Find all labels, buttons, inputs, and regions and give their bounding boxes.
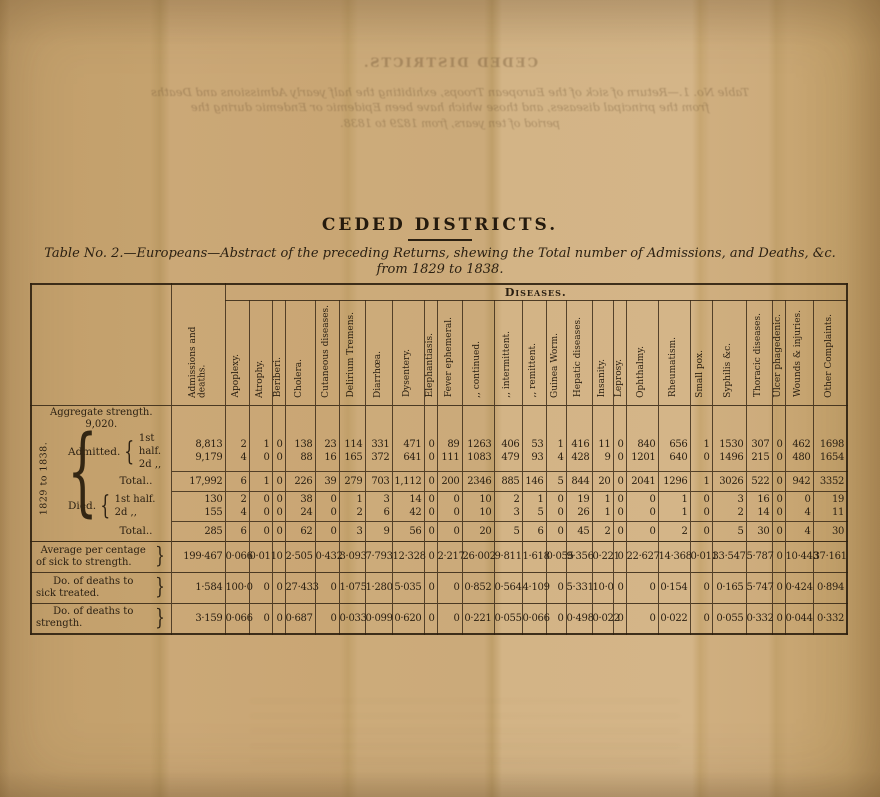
label-line-2: of sick to strength. <box>34 557 153 569</box>
data-cell: 0·221 <box>592 541 613 572</box>
data-cell: 0·066 <box>225 541 249 572</box>
data-cell: 942 <box>785 471 813 491</box>
column-header-label: Hepatic diseases. <box>574 317 584 397</box>
value-line: 307 <box>747 438 770 451</box>
brace-icon: { <box>125 437 135 467</box>
data-cell: 23 <box>494 491 522 521</box>
data-cell: 0·424 <box>785 572 813 603</box>
data-cell: 0·221 <box>462 603 494 634</box>
data-cell: 32 <box>712 491 746 521</box>
value-line: 155 <box>172 506 223 519</box>
data-cell: 100·0 <box>225 572 249 603</box>
data-cell <box>424 405 437 432</box>
data-cell: 11 <box>592 491 613 521</box>
data-cell: 2 <box>592 521 613 541</box>
show-through-line: period of ten years, from 1829 to 1838. <box>140 117 760 130</box>
value-line: 0 <box>250 506 270 519</box>
column-header-label: ,, intermittent. <box>503 331 513 398</box>
data-cell: 199·467 <box>171 541 225 572</box>
row-label: Do. of deaths tosick treated.} <box>31 572 171 603</box>
data-cell: 0 <box>424 521 437 541</box>
caption-line-2: from 1829 to 1838. <box>377 262 504 277</box>
aggregate-strength-label: Aggregate strength.9,020. <box>34 407 169 431</box>
column-header-label: Small pox. <box>696 350 706 398</box>
value-line: 114 <box>340 438 363 451</box>
row-label: Total.. <box>31 521 171 541</box>
data-cell: 0 <box>626 603 658 634</box>
data-cell <box>546 405 566 432</box>
data-cell: 11 <box>658 491 690 521</box>
data-cell <box>566 405 592 432</box>
data-cell: 2041 <box>626 471 658 491</box>
half-label-1: 1st half. <box>115 493 156 506</box>
value-line: 23 <box>316 438 337 451</box>
column-header-label: Cholera. <box>295 359 305 398</box>
data-cell: 6 <box>225 471 249 491</box>
data-cell: 4 <box>785 521 813 541</box>
show-through-title: CEDED DISTRICTS. <box>140 56 760 71</box>
data-cell: 5·747 <box>746 572 772 603</box>
show-through-text: CEDED DISTRICTS. Table No. 1.—Return of … <box>140 56 760 130</box>
brace-icon: } <box>155 575 165 600</box>
data-cell: 00 <box>546 491 566 521</box>
percentage-row: Average per centageof sick to strength.}… <box>31 541 847 572</box>
value-line: 4 <box>547 451 564 464</box>
value-line: 11 <box>814 506 845 519</box>
data-cell: 14 <box>546 432 566 471</box>
brace-icon: } <box>155 606 165 631</box>
data-cell: 0 <box>690 603 712 634</box>
data-cell: 0·099 <box>365 603 392 634</box>
data-cell: 89111 <box>437 432 462 471</box>
label-line-1: Average per centage <box>34 545 153 557</box>
percentage-label-lines: Do. of deaths tosick treated. <box>34 576 153 600</box>
diseases-band-row: Diseases. <box>31 284 847 301</box>
column-header: Diarrhœa. <box>365 301 392 406</box>
data-cell: 0 <box>626 521 658 541</box>
percentage-label-lines: Average per centageof sick to strength. <box>34 545 153 569</box>
row-label: Died.{1st half.2d ,, <box>31 491 171 521</box>
scanned-document-page: CEDED DISTRICTS. Table No. 1.—Return of … <box>0 0 880 797</box>
group-label: Died.{1st half.2d ,, <box>34 491 169 521</box>
show-through-line: Table No. 1.—Return of sick of the Europ… <box>140 85 760 100</box>
column-header-label: Ulcer phagedenic. <box>774 314 784 398</box>
column-header: Wounds & injuries. <box>785 301 813 406</box>
data-cell: 0 <box>772 541 785 572</box>
data-cell: 1·618 <box>522 541 546 572</box>
data-cell: 8,8139,179 <box>171 432 225 471</box>
data-cell: 226 <box>285 471 315 491</box>
data-cell: 0·894 <box>813 572 847 603</box>
value-line: 0 <box>773 438 783 451</box>
data-cell: 56 <box>392 521 424 541</box>
data-cell: 27·433 <box>285 572 315 603</box>
data-cell: 2 <box>658 521 690 541</box>
value-line: 0 <box>425 493 435 506</box>
page-title: CEDED DISTRICTS. <box>0 215 880 235</box>
value-line: 1 <box>340 493 363 506</box>
data-cell: 1·280 <box>365 572 392 603</box>
data-cell: 2346 <box>462 471 494 491</box>
value-line: 3 <box>366 493 390 506</box>
data-cell: 0·620 <box>392 603 424 634</box>
value-line: 0 <box>438 493 460 506</box>
data-cell: 200 <box>437 471 462 491</box>
row-label: Average per centageof sick to strength.} <box>31 541 171 572</box>
data-cell: 8401201 <box>626 432 658 471</box>
column-header: Fever ephemeral. <box>437 301 462 406</box>
total-row: Total..285600620395600205604520020530043… <box>31 521 847 541</box>
value-line: 88 <box>286 451 313 464</box>
data-cell: 1442 <box>392 491 424 521</box>
data-cell: 406479 <box>494 432 522 471</box>
half-label-2: 2d ,, <box>115 506 156 519</box>
column-header-label: Cutaneous diseases. <box>322 305 332 398</box>
row-label-header <box>31 301 171 406</box>
value-line: 479 <box>495 451 520 464</box>
row-label: Do. of deaths tostrength.} <box>31 603 171 634</box>
percentage-label: Do. of deaths tostrength.} <box>34 606 169 631</box>
percentage-row: Do. of deaths tosick treated.}1·584100·0… <box>31 572 847 603</box>
data-cell: 10·0 <box>592 572 613 603</box>
data-cell: 00 <box>272 491 285 521</box>
corner-cell <box>31 284 171 301</box>
show-through-line: from the principal diseases, and those w… <box>140 100 760 115</box>
value-line: 1654 <box>814 451 845 464</box>
data-cell: 3·159 <box>171 603 225 634</box>
data-cell: 1926 <box>566 491 592 521</box>
column-header-label: Guinea Worm. <box>551 333 561 398</box>
data-cell <box>272 405 285 432</box>
column-header-label: Admissions and deaths. <box>189 301 208 398</box>
data-cell: 656640 <box>658 432 690 471</box>
column-header: Other Complaints. <box>813 301 847 406</box>
data-cell: 3352 <box>813 471 847 491</box>
data-cell: 00 <box>626 491 658 521</box>
value-line: 0 <box>614 438 624 451</box>
value-line: 1 <box>523 493 544 506</box>
data-cell: 471641 <box>392 432 424 471</box>
data-cell: 0·044 <box>785 603 813 634</box>
data-cell: 0 <box>272 521 285 541</box>
label-line-2: strength. <box>34 618 153 630</box>
value-line: 0 <box>273 493 283 506</box>
column-header-label: ,, continued. <box>473 341 483 398</box>
data-cell: 36 <box>365 491 392 521</box>
data-cell: 0 <box>424 471 437 491</box>
column-header: Dysentery. <box>392 301 424 406</box>
data-cell: 0 <box>772 521 785 541</box>
value-line: 9 <box>593 451 611 464</box>
column-header: Leprosy. <box>613 301 626 406</box>
data-cell: 0·011 <box>249 541 272 572</box>
data-cell: 522 <box>746 471 772 491</box>
value-line: 0 <box>438 506 460 519</box>
data-cell: 2·505 <box>285 541 315 572</box>
data-cell: 1·075 <box>339 572 365 603</box>
value-line: 1 <box>547 438 564 451</box>
data-cell <box>225 405 249 432</box>
total-row: Total..17,992610226392797031,11202002346… <box>31 471 847 491</box>
data-cell: 0 <box>690 572 712 603</box>
data-cell: 146 <box>522 471 546 491</box>
data-cell: 00 <box>772 432 785 471</box>
value-line: 1263 <box>463 438 492 451</box>
half-year-row: Admitted.{1st half.2d ,,8,8139,179241000… <box>31 432 847 471</box>
data-cell: 5393 <box>522 432 546 471</box>
total-label: Total.. <box>34 525 169 537</box>
value-line: 0 <box>425 451 435 464</box>
column-header-label: Leprosy. <box>615 359 625 397</box>
corner-cell <box>171 284 225 301</box>
data-cell: 1911 <box>813 491 847 521</box>
data-cell: 0·564 <box>494 572 522 603</box>
value-line: 2 <box>495 493 520 506</box>
data-cell <box>613 405 626 432</box>
data-cell <box>462 405 494 432</box>
data-cell: 0·332 <box>813 603 847 634</box>
value-line: 640 <box>659 451 688 464</box>
data-cell: 0 <box>613 471 626 491</box>
data-cell: 9·356 <box>566 541 592 572</box>
value-line: 0 <box>773 506 783 519</box>
value-line: 0 <box>614 493 624 506</box>
column-header-label: Syphilis &c. <box>724 343 734 398</box>
column-header-label: Insanity. <box>598 359 608 397</box>
data-cell: 331372 <box>365 432 392 471</box>
half-label-2: 2d ,, <box>139 458 169 471</box>
value-line: 0 <box>273 506 283 519</box>
data-cell: 0 <box>546 521 566 541</box>
value-line: 53 <box>523 438 544 451</box>
value-line: 9,179 <box>172 451 223 464</box>
value-line: 0 <box>773 451 783 464</box>
data-cell: 04 <box>785 491 813 521</box>
data-cell: 0 <box>626 572 658 603</box>
group-label: Admitted.{1st half.2d ,, <box>34 432 169 471</box>
data-cell: 1296 <box>658 471 690 491</box>
half-labels: 1st half.2d ,, <box>115 493 156 519</box>
data-cell: 0 <box>424 603 437 634</box>
data-cell: 0·066 <box>522 603 546 634</box>
data-cell: 16981654 <box>813 432 847 471</box>
value-line: 1083 <box>463 451 492 464</box>
year-range-label: 1829 to 1838. <box>39 439 50 519</box>
value-line: 8,813 <box>172 438 223 451</box>
data-cell: 5 <box>494 521 522 541</box>
value-line: 0 <box>614 451 624 464</box>
value-line: 2 <box>713 506 744 519</box>
value-line: 1496 <box>713 451 744 464</box>
row-label: Admitted.{1st half.2d ,, <box>31 432 171 471</box>
value-line: 38 <box>286 493 313 506</box>
value-line: 4 <box>786 506 811 519</box>
caption-line-1: Table No. 2.—Europeans—Abstract of the p… <box>44 246 836 261</box>
data-cell <box>712 405 746 432</box>
value-line: 5 <box>523 506 544 519</box>
data-cell: 33·547 <box>712 541 746 572</box>
data-cell: 0 <box>772 603 785 634</box>
value-line: 2 <box>340 506 363 519</box>
value-line: 93 <box>523 451 544 464</box>
data-cell: 0·852 <box>462 572 494 603</box>
data-cell: 416428 <box>566 432 592 471</box>
column-header: ,, continued. <box>462 301 494 406</box>
value-line: 0 <box>316 506 337 519</box>
value-line: 138 <box>286 438 313 451</box>
value-line: 3 <box>495 506 520 519</box>
value-line: 215 <box>747 451 770 464</box>
data-cell: 0 <box>437 603 462 634</box>
value-line: 24 <box>286 506 313 519</box>
value-line: 3 <box>713 493 744 506</box>
data-cell: 0 <box>690 521 712 541</box>
column-header: ,, intermittent. <box>494 301 522 406</box>
label-line-2: sick treated. <box>34 588 153 600</box>
data-cell: 7·793 <box>365 541 392 572</box>
data-cell: 0 <box>249 521 272 541</box>
data-cell <box>592 405 613 432</box>
column-header: Beriberi. <box>272 301 285 406</box>
value-line: 1530 <box>713 438 744 451</box>
data-cell: 45 <box>566 521 592 541</box>
statistics-table-wrap: Diseases.Admissions and deaths.Apoplexy.… <box>30 283 848 635</box>
data-cell: 0·022 <box>658 603 690 634</box>
data-cell: 5·787 <box>746 541 772 572</box>
data-cell: 1614 <box>746 491 772 521</box>
column-header-label: Thoracic diseases. <box>754 313 764 397</box>
column-header-label: Diarrhœa. <box>374 351 384 398</box>
data-cell: 00 <box>772 491 785 521</box>
data-cell: 1·584 <box>171 572 225 603</box>
data-cell: 1010 <box>462 491 494 521</box>
data-cell: 22·627 <box>626 541 658 572</box>
column-header: Insanity. <box>592 301 613 406</box>
aggregate-value: 9,020. <box>34 419 169 431</box>
value-line: 16 <box>316 451 337 464</box>
half-label-1: 1st half. <box>139 432 169 458</box>
data-cell <box>746 405 772 432</box>
column-header: Rheumatism. <box>658 301 690 406</box>
percentage-label: Do. of deaths tosick treated.} <box>34 575 169 600</box>
data-cell: 00 <box>613 432 626 471</box>
column-header: Guinea Worm. <box>546 301 566 406</box>
data-cell: 15301496 <box>712 432 746 471</box>
data-cell <box>785 405 813 432</box>
data-cell: 00 <box>424 491 437 521</box>
data-cell: 10·443 <box>785 541 813 572</box>
total-label: Total.. <box>34 475 169 487</box>
data-cell: 0 <box>272 572 285 603</box>
data-cell: 279 <box>339 471 365 491</box>
value-line: 1 <box>691 438 710 451</box>
value-line: 130 <box>172 493 223 506</box>
value-line: 656 <box>659 438 688 451</box>
data-cell <box>690 405 712 432</box>
value-line: 1 <box>659 506 688 519</box>
column-header: Syphilis &c. <box>712 301 746 406</box>
row-label: Total.. <box>31 471 171 491</box>
data-cell <box>658 405 690 432</box>
column-header: Delirium Tremens. <box>339 301 365 406</box>
value-line: 16 <box>747 493 770 506</box>
column-header: Admissions and deaths. <box>171 301 225 406</box>
column-header: Small pox. <box>690 301 712 406</box>
data-cell: 00 <box>315 491 339 521</box>
data-cell: 3026 <box>712 471 746 491</box>
data-cell: 0·055 <box>546 541 566 572</box>
column-header-label: ,, remittent. <box>529 343 539 397</box>
statistics-table: Diseases.Admissions and deaths.Apoplexy.… <box>30 283 848 635</box>
value-line: 641 <box>393 451 422 464</box>
value-line: 471 <box>393 438 422 451</box>
percentage-row: Do. of deaths tostrength.}3·1590·066000·… <box>31 603 847 634</box>
data-cell <box>365 405 392 432</box>
data-cell: 3824 <box>285 491 315 521</box>
data-cell: 24 <box>225 491 249 521</box>
data-cell: 0 <box>613 572 626 603</box>
column-header: Hepatic diseases. <box>566 301 592 406</box>
data-cell: 462480 <box>785 432 813 471</box>
data-cell <box>249 405 272 432</box>
data-cell: 0·498 <box>566 603 592 634</box>
value-line: 0 <box>547 493 564 506</box>
value-line: 0 <box>614 506 624 519</box>
column-header-label: Apoplexy. <box>232 354 242 397</box>
value-line: 14 <box>747 506 770 519</box>
value-line: 0 <box>250 451 270 464</box>
data-cell: 9·811 <box>494 541 522 572</box>
value-line: 10 <box>463 506 492 519</box>
data-cell: 10 <box>249 432 272 471</box>
value-line: 1201 <box>627 451 656 464</box>
data-cell <box>522 405 546 432</box>
percentage-label: Average per centageof sick to strength.} <box>34 544 169 569</box>
data-cell: 13888 <box>285 432 315 471</box>
value-line: 1 <box>593 506 611 519</box>
data-cell: 00 <box>437 491 462 521</box>
data-cell: 844 <box>566 471 592 491</box>
value-line: 331 <box>366 438 390 451</box>
data-cell <box>437 405 462 432</box>
column-header: Apoplexy. <box>225 301 249 406</box>
data-cell: 3·093 <box>339 541 365 572</box>
column-header-label: Ophthalmy. <box>637 346 647 398</box>
value-line: 372 <box>366 451 390 464</box>
row-label: Aggregate strength.9,020. <box>31 405 171 432</box>
data-cell: 119 <box>592 432 613 471</box>
value-line: 2 <box>226 493 247 506</box>
data-cell: 4·109 <box>522 572 546 603</box>
value-line: 0 <box>273 438 283 451</box>
value-line: 19 <box>814 493 845 506</box>
value-line: 1 <box>250 438 270 451</box>
data-cell: 0·154 <box>658 572 690 603</box>
percentage-label-lines: Do. of deaths tostrength. <box>34 606 153 630</box>
data-cell: 307215 <box>746 432 772 471</box>
value-line: 0 <box>627 493 656 506</box>
data-cell: 1 <box>690 471 712 491</box>
data-cell <box>392 405 424 432</box>
column-header-row: Admissions and deaths.Apoplexy.Atrophy.B… <box>31 301 847 406</box>
column-header-label: Other Complaints. <box>825 314 835 398</box>
value-line: 165 <box>340 451 363 464</box>
column-header-label: Delirium Tremens. <box>347 312 357 397</box>
data-cell: 5·331 <box>566 572 592 603</box>
data-cell: 0 <box>772 572 785 603</box>
data-cell: 130155 <box>171 491 225 521</box>
value-line: 0 <box>691 493 710 506</box>
